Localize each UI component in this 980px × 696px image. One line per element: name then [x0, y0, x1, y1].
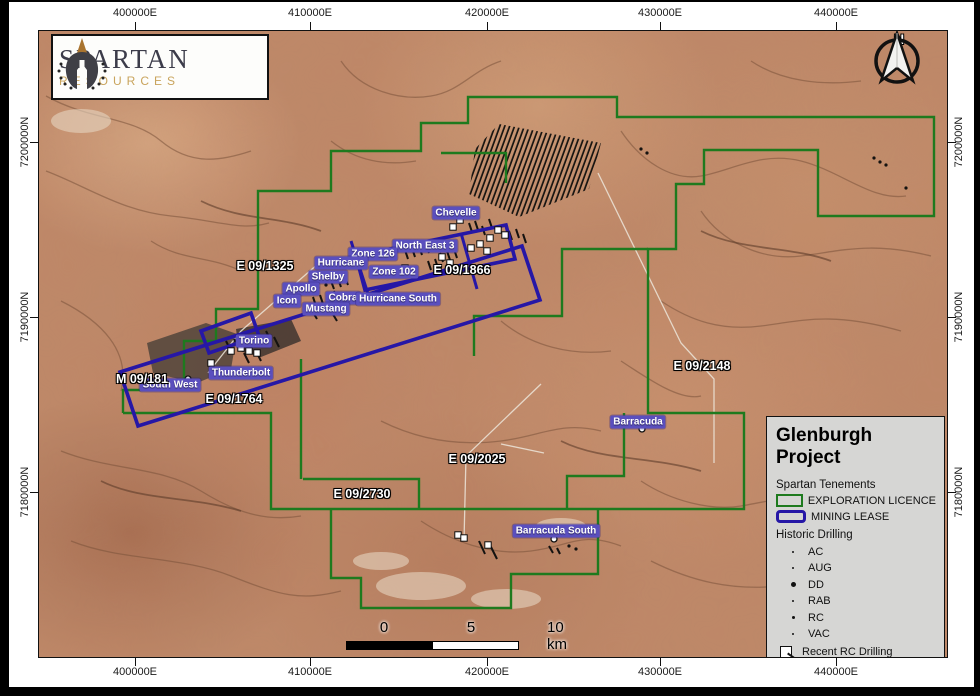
legend-drilling-row: AC — [786, 546, 936, 558]
legend-tenements-heading: Spartan Tenements — [776, 479, 936, 491]
legend-drilling-row: RC — [786, 612, 936, 624]
historic-drill-dot — [872, 156, 875, 159]
drill-type-dot-icon — [786, 551, 800, 553]
recent-rc-square-marker — [246, 348, 252, 354]
page-canvas: ChevelleNorth East 3Zone 126HurricaneZon… — [9, 2, 974, 687]
grid-coordinate-label: 420000E — [465, 666, 509, 678]
historic-drill-dot — [639, 147, 642, 150]
legend-drilling-row: VAC — [786, 628, 936, 640]
historic-drill-dot — [645, 151, 648, 154]
grid-coordinate-label: 420000E — [465, 7, 509, 19]
drill-type-dot-icon — [786, 616, 800, 619]
legend-item-label: MINING LEASE — [811, 511, 889, 523]
legend-drilling-label: AUG — [808, 562, 832, 574]
grid-tick — [660, 658, 661, 666]
tenement-label: E 09/1764 — [206, 392, 263, 406]
prospect-label: Mustang — [302, 303, 349, 316]
grid-tick — [836, 658, 837, 666]
grid-coordinate-label: 410000E — [288, 7, 332, 19]
recent-rc-square-marker — [495, 227, 501, 233]
prospect-label: Icon — [274, 295, 301, 308]
legend-drilling-row: DD — [786, 579, 936, 591]
grid-coordinate-label: 440000E — [814, 7, 858, 19]
grid-coordinate-label: 430000E — [638, 666, 682, 678]
drill-type-dot-icon — [786, 567, 800, 569]
legend-drilling-label: RAB — [808, 595, 831, 607]
recent-rc-square-marker — [228, 348, 234, 354]
grid-tick — [310, 22, 311, 30]
pale-patch — [353, 552, 409, 570]
legend-tenement-row: MINING LEASE — [776, 510, 936, 523]
legend-title: Glenburgh Project — [776, 425, 936, 469]
grid-coordinate-label: 400000E — [113, 666, 157, 678]
scale-zero: 0 — [380, 619, 388, 636]
legend-item-label: EXPLORATION LICENCE — [808, 495, 936, 507]
pale-patch — [51, 109, 111, 133]
legend-tenement-row: EXPLORATION LICENCE — [776, 494, 936, 507]
prospect-label: Hurricane South — [356, 293, 440, 306]
legend-panel: Glenburgh Project Spartan Tenements EXPL… — [766, 416, 945, 658]
drill-type-dot-icon — [786, 600, 800, 602]
historic-drill-dot — [324, 283, 327, 286]
grid-coordinate-label: 400000E — [113, 7, 157, 19]
pale-patch — [471, 589, 541, 609]
grid-coordinate-label: 440000E — [814, 666, 858, 678]
grid-tick — [30, 317, 38, 318]
prospect-label: North East 3 — [393, 240, 458, 253]
legend-drilling-row: RAB — [786, 595, 936, 607]
recent-rc-square-marker — [208, 360, 214, 366]
prospect-label: Thunderbolt — [209, 367, 273, 380]
grid-tick — [948, 317, 956, 318]
glenburgh-map: ChevelleNorth East 3Zone 126HurricaneZon… — [38, 30, 948, 658]
recent-rc-square-icon — [780, 646, 792, 658]
legend-swatch-icon — [776, 510, 806, 523]
recent-rc-square-marker — [485, 542, 491, 548]
tenement-label: E 09/1325 — [237, 259, 294, 273]
tenement-label: E 09/2025 — [449, 452, 506, 466]
legend-swatch-icon — [776, 494, 803, 507]
tenement-label: M 09/181 — [116, 372, 168, 386]
prospect-label: Torino — [236, 335, 272, 348]
legend-drilling-label: RC — [808, 612, 824, 624]
legend-drilling-heading: Historic Drilling — [776, 529, 936, 541]
north-arrow-icon — [869, 31, 925, 91]
historic-drill-dot — [574, 547, 577, 550]
prospect-label: Barracuda — [610, 416, 665, 429]
grid-coordinate-label: 410000E — [288, 666, 332, 678]
legend-recent-rc-row: Recent RC Drilling — [778, 646, 936, 658]
spartan-logo: SPARTAN RESOURCES — [51, 34, 269, 100]
recent-rc-square-marker — [461, 535, 467, 541]
recent-rc-square-marker — [455, 532, 461, 538]
prospect-label: Barracuda South — [513, 525, 600, 538]
recent-rc-square-marker — [477, 241, 483, 247]
tenement-label: E 09/2148 — [674, 359, 731, 373]
historic-drill-dot — [567, 544, 570, 547]
legend-drilling-items: ACAUGDDRABRCVAC — [776, 546, 936, 641]
tenement-label: E 09/1866 — [434, 263, 491, 277]
grid-tick — [948, 142, 956, 143]
grid-tick — [30, 142, 38, 143]
recent-rc-square-marker — [468, 245, 474, 251]
scale-ten-km: 10 km — [547, 619, 567, 653]
prospect-label: Chevelle — [432, 207, 479, 220]
grid-tick — [487, 22, 488, 30]
scale-bar: 0 5 10 km — [339, 619, 539, 650]
scale-five: 5 — [467, 619, 475, 636]
prospect-label: Hurricane — [315, 257, 368, 270]
scale-bar-filled-half — [347, 642, 433, 649]
grid-tick — [948, 492, 956, 493]
scale-bar-numbers: 0 5 10 km — [339, 619, 539, 637]
tenement-label: E 09/2730 — [334, 487, 391, 501]
grid-tick — [660, 22, 661, 30]
drill-type-dot-icon — [786, 633, 800, 635]
historic-drill-dot — [904, 186, 907, 189]
grid-tick — [836, 22, 837, 30]
drill-type-dot-icon — [786, 582, 800, 587]
legend-drilling-row: AUG — [786, 562, 936, 574]
grid-tick — [135, 658, 136, 666]
spartan-helmet-icon — [53, 36, 111, 94]
pale-patch — [376, 572, 466, 600]
legend-drilling-label: VAC — [808, 628, 830, 640]
grid-coordinate-label: 430000E — [638, 7, 682, 19]
grid-tick — [135, 22, 136, 30]
legend-drilling-label: AC — [808, 546, 823, 558]
legend-recent-rc-label: Recent RC Drilling — [802, 646, 892, 658]
recent-rc-square-marker — [484, 248, 490, 254]
recent-rc-square-marker — [487, 235, 493, 241]
historic-drill-dot — [884, 163, 887, 166]
scale-bar-rule — [346, 641, 519, 650]
screenshot-frame: ChevelleNorth East 3Zone 126HurricaneZon… — [0, 0, 980, 696]
historic-drill-dot — [878, 160, 881, 163]
recent-rc-square-marker — [502, 232, 508, 238]
recent-rc-square-marker — [439, 254, 445, 260]
legend-tenement-items: EXPLORATION LICENCEMINING LEASE — [776, 494, 936, 523]
grid-tick — [30, 492, 38, 493]
prospect-label: Zone 102 — [369, 266, 418, 279]
recent-rc-square-marker — [450, 224, 456, 230]
grid-tick — [487, 658, 488, 666]
legend-drilling-label: DD — [808, 579, 824, 591]
north-arrow: N — [869, 31, 929, 111]
recent-rc-square-marker — [254, 350, 260, 356]
grid-tick — [310, 658, 311, 666]
